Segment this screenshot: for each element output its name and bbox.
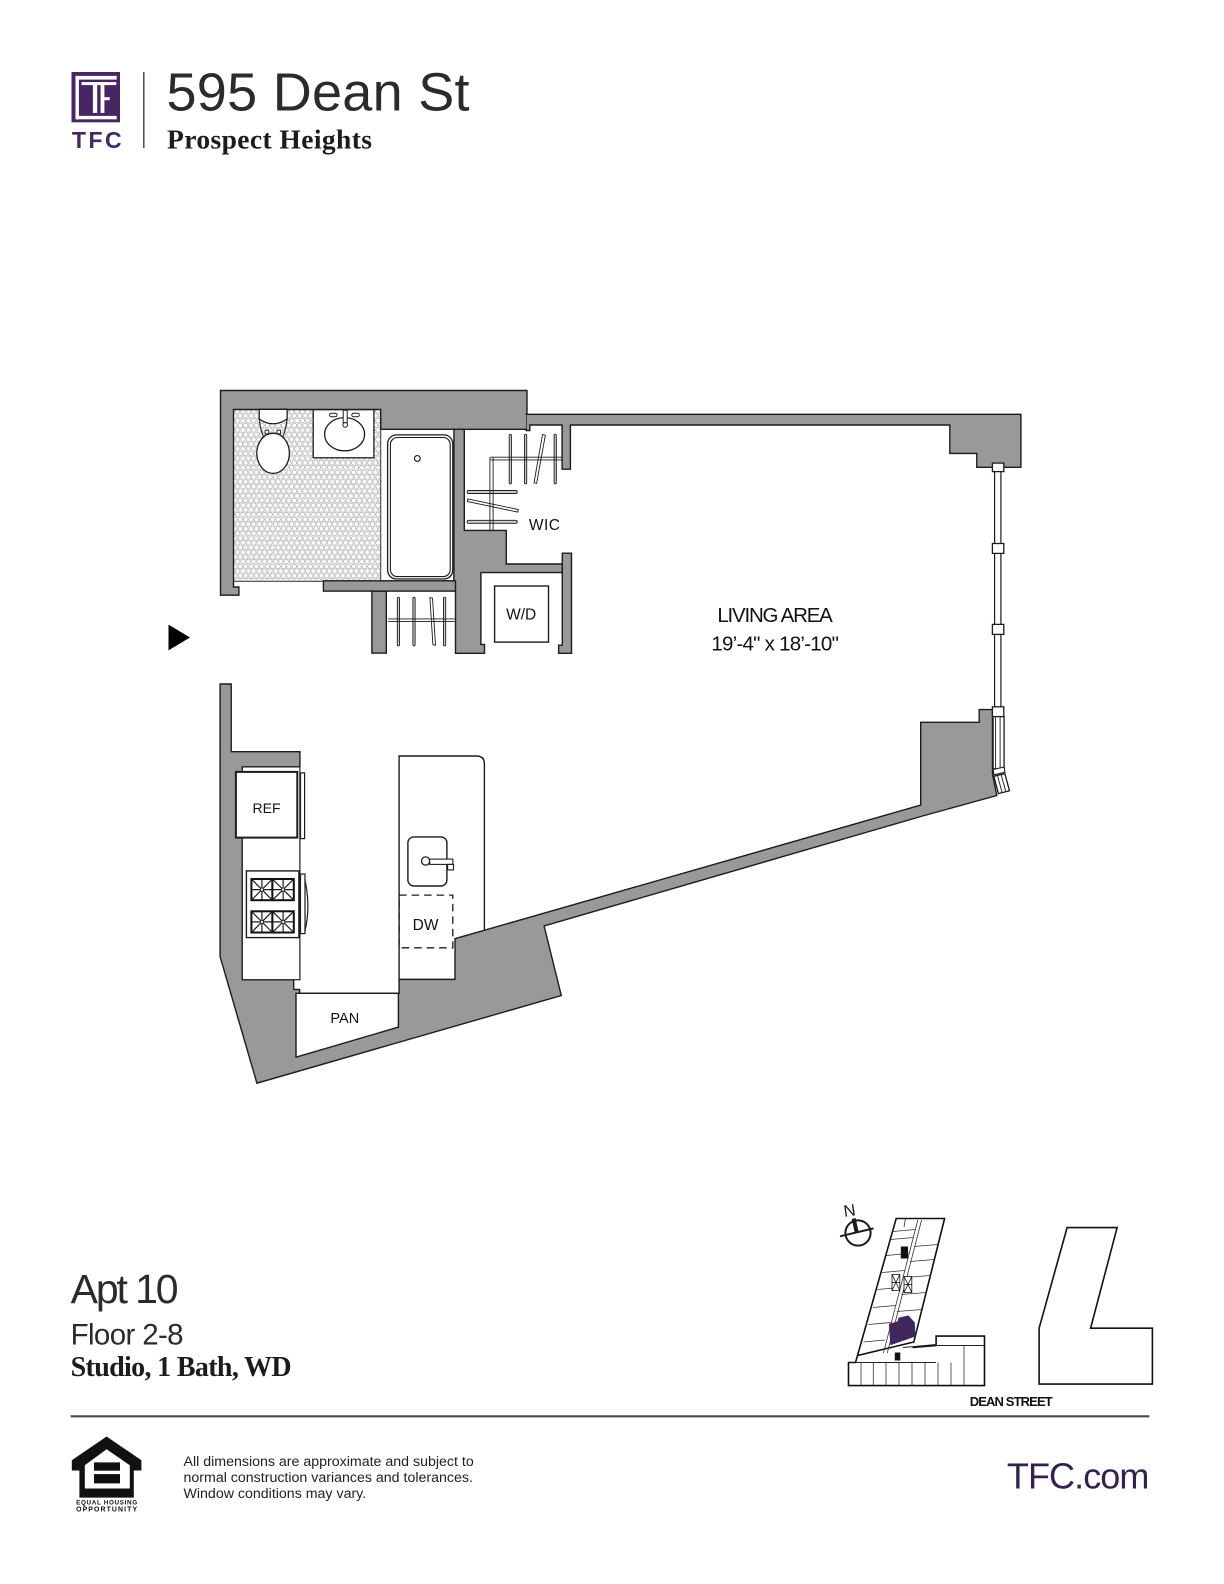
svg-text:Apt 10: Apt 10 (71, 1266, 179, 1312)
svg-text:DEAN STREET: DEAN STREET (970, 1394, 1053, 1409)
svg-text:All dimensions are approximate: All dimensions are approximate and subje… (184, 1454, 474, 1470)
svg-text:595 Dean St: 595 Dean St (167, 63, 470, 123)
svg-text:PAN: PAN (330, 1011, 359, 1027)
svg-text:Studio, 1 Bath, WD: Studio, 1 Bath, WD (71, 1352, 292, 1383)
svg-text:LIVING AREA: LIVING AREA (717, 604, 833, 627)
svg-text:Floor 2-8: Floor 2-8 (71, 1319, 184, 1352)
svg-text:EQUAL HOUSING: EQUAL HOUSING (76, 1499, 137, 1506)
svg-text:N: N (842, 1201, 856, 1220)
svg-text:19’-4" x 18’-10": 19’-4" x 18’-10" (711, 633, 839, 656)
svg-text:TFC: TFC (72, 127, 124, 153)
svg-text:OPPORTUNITY: OPPORTUNITY (76, 1507, 137, 1514)
svg-text:REF: REF (253, 800, 281, 816)
svg-text:TFC.com: TFC.com (1007, 1455, 1150, 1496)
svg-text:WIC: WIC (529, 517, 561, 534)
svg-text:Prospect Heights: Prospect Heights (167, 124, 372, 155)
svg-text:W/D: W/D (506, 607, 536, 624)
svg-text:DW: DW (413, 917, 439, 934)
svg-text:normal construction variances: normal construction variances and tolera… (184, 1470, 473, 1486)
svg-text:Window conditions may vary.: Window conditions may vary. (184, 1486, 367, 1502)
